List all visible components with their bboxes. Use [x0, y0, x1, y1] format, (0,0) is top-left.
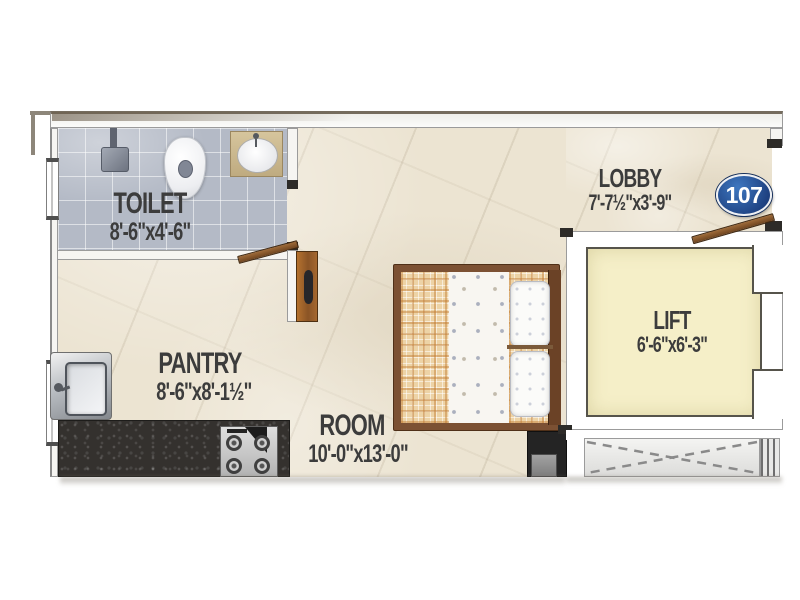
- bedside-table: [527, 431, 567, 477]
- wall-continuation-mark: [31, 111, 35, 155]
- duct-cross-marking: [584, 438, 760, 477]
- burner-icon: [226, 458, 242, 474]
- top-wall-shade: [52, 112, 352, 121]
- lift-dims: 6'-6"x6'-3": [630, 333, 715, 356]
- lobby-dims: 7'-7½"x3'-9": [588, 191, 673, 214]
- wc-flush-icon: [178, 160, 193, 178]
- room-name: ROOM: [308, 412, 396, 441]
- washbasin-icon: [237, 138, 278, 173]
- drop-shadow: [566, 477, 782, 485]
- room-dims: 10'-0"x13'-0": [308, 441, 396, 467]
- toilet-label: TOILET 8'-6"x4'-6": [106, 190, 194, 245]
- burner-icon: [226, 435, 242, 451]
- shower-head-icon: [101, 147, 129, 172]
- sink-basin: [65, 362, 107, 416]
- toilet-name: TOILET: [106, 190, 194, 219]
- lobby-name: LOBBY: [588, 166, 673, 191]
- duct-x-lines: [585, 439, 759, 476]
- lift-name: LIFT: [630, 308, 715, 333]
- wardrobe-panel: [296, 251, 318, 322]
- drop-shadow: [60, 477, 565, 486]
- wall-end-tick: [560, 228, 573, 237]
- bed-fold-line: [507, 345, 553, 349]
- toilet-window: [46, 158, 59, 220]
- toilet-dims: 8'-6"x4'-6": [106, 219, 194, 245]
- pantry-label: PANTRY 8'-6"x8'-1½": [156, 350, 244, 405]
- stair-edge-lines: [760, 438, 780, 477]
- pillow: [510, 351, 550, 417]
- room-label: ROOM 10'-0"x13'-0": [308, 412, 396, 467]
- gas-stove-icon: [220, 426, 278, 477]
- wardrobe-handle: [304, 270, 313, 304]
- bedside-drawer: [531, 454, 557, 477]
- burner-icon: [254, 458, 270, 474]
- basin-faucet-icon: [255, 139, 257, 147]
- toilet-right-wall: [287, 128, 298, 182]
- pantry-dims: 8'-6"x8'-1½": [156, 379, 244, 405]
- bed-blanket: [401, 272, 449, 423]
- pillow: [510, 281, 550, 347]
- entrance-jamb-tick: [767, 139, 782, 148]
- stove-knobs: [227, 429, 247, 433]
- lift-door-jamb: [752, 245, 783, 294]
- lobby-label: LOBBY 7'-7½"x3'-9": [588, 166, 673, 214]
- unit-number: 107: [726, 182, 763, 209]
- lift-label: LIFT 6'-6"x6'-3": [630, 308, 715, 356]
- floor-plan: 107 TOILET 8'-6"x4'-6" PANTRY 8'-6"x8'-1…: [0, 0, 800, 600]
- pantry-name: PANTRY: [156, 350, 244, 379]
- unit-number-badge: 107: [716, 174, 772, 216]
- lift-door-jamb: [752, 369, 783, 419]
- kitchen-sink-icon: [50, 352, 112, 420]
- door-jamb-tick: [287, 180, 298, 189]
- burner-icon: [254, 435, 270, 451]
- bed-sheet: [449, 272, 509, 423]
